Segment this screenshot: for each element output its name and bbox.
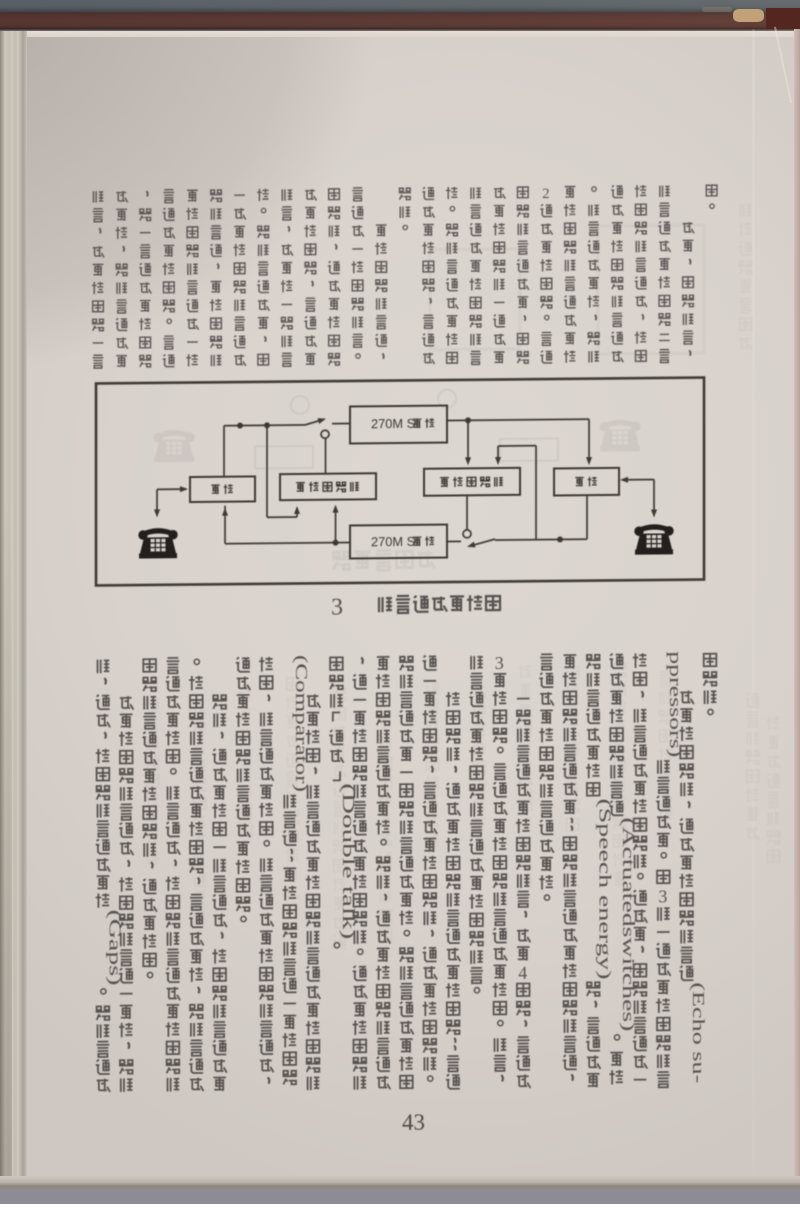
svg-text:3: 3 (331, 595, 343, 621)
svg-text:(Echo su-: (Echo su- (689, 982, 708, 1084)
svg-text:270M S: 270M S (371, 416, 415, 431)
svg-text:(Double talk): (Double talk) (339, 783, 358, 939)
svg-text:2: 2 (542, 186, 549, 202)
svg-text:3: 3 (658, 886, 667, 906)
svg-text:4: 4 (518, 963, 527, 983)
svg-text:(Actuatedswitches): (Actuatedswitches) (619, 817, 638, 1031)
svg-text:43: 43 (402, 1110, 425, 1135)
svg-text:(Comparator): (Comparator) (292, 655, 311, 792)
svg-text:270M S: 270M S (371, 534, 415, 549)
svg-text:ppressors): ppressors) (666, 651, 685, 757)
svg-text:(Speech energy): (Speech energy) (596, 798, 615, 979)
svg-text:3: 3 (495, 653, 504, 673)
svg-text:(Gaps): (Gaps) (105, 909, 124, 985)
